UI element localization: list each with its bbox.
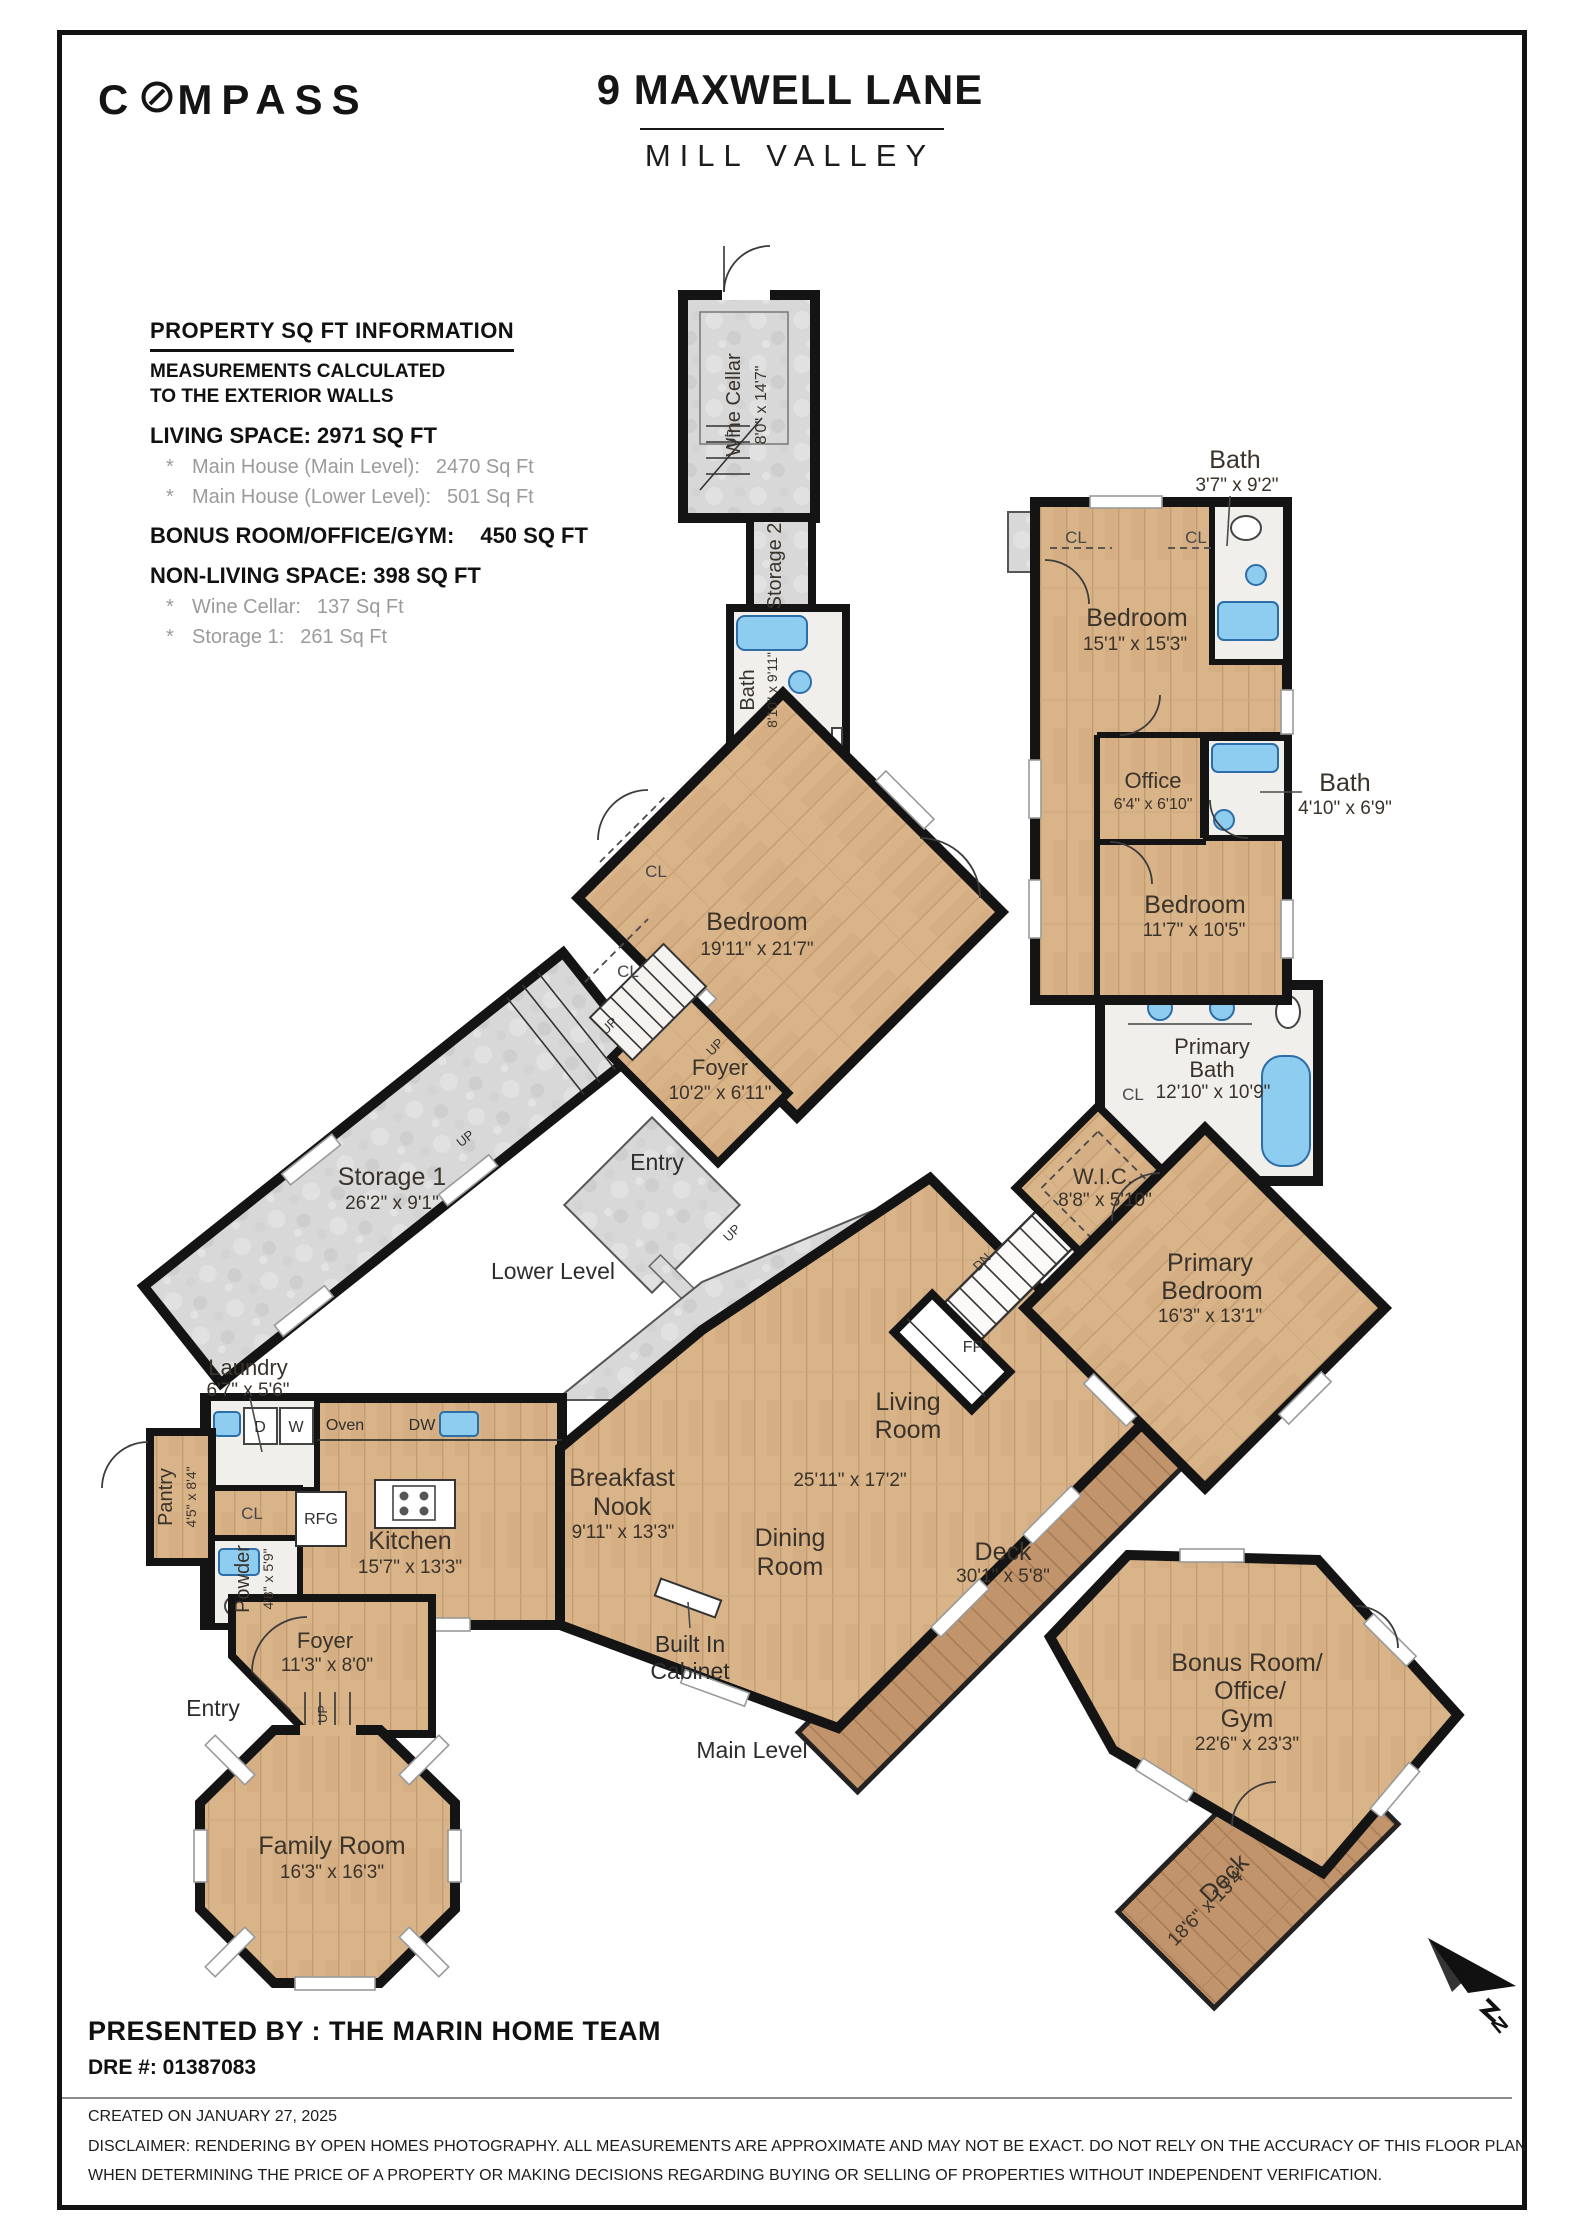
footer-divider <box>62 2097 1512 2099</box>
foyer-main-label: Foyer <box>297 1628 353 1653</box>
pantry-dims: 4'5" x 8'4" <box>183 1466 199 1527</box>
bath-lower-dims: 8'10" x 9'11" <box>764 652 780 728</box>
deck-main-dims: 30'1" x 5'8" <box>956 1566 1050 1587</box>
storage1-dims: 26'2" x 9'1" <box>345 1193 439 1214</box>
powder-label: Powder <box>232 1545 254 1613</box>
dryer-label: D <box>254 1419 266 1436</box>
bedroom-15-dims: 15'1" x 15'3" <box>1083 634 1187 655</box>
up-label: UP <box>724 429 739 447</box>
main-level-label: Main Level <box>696 1737 807 1763</box>
closet-label: CL <box>1122 1085 1144 1104</box>
living-room-dims: 25'11" x 17'2" <box>793 1470 906 1491</box>
storage1-label: Storage 1 <box>338 1163 446 1191</box>
primary-bedroom-label: Primary <box>1167 1249 1254 1277</box>
sink-icon <box>1214 810 1234 830</box>
powder-dims: 4'8" x 5'9" <box>260 1548 276 1609</box>
family-room-label: Family Room <box>258 1832 405 1860</box>
dre-number: DRE #: 01387083 <box>88 2056 256 2080</box>
storage2-label: Storage 2 <box>764 523 786 610</box>
created-date: CREATED ON JANUARY 27, 2025 <box>88 2108 337 2126</box>
tub-icon <box>737 616 807 650</box>
kitchen-sink-icon <box>440 1412 478 1436</box>
disclaimer-line2: WHEN DETERMINING THE PRICE OF A PROPERTY… <box>88 2167 1508 2185</box>
sink-icon <box>1246 565 1266 585</box>
tub-icon <box>1262 1056 1310 1166</box>
closet-label: CL <box>617 962 639 981</box>
breakfast-nook-label2: Nook <box>593 1493 652 1521</box>
primary-bath-label2: Bath <box>1189 1057 1234 1082</box>
laundry-dims: 6'7" x 5'6" <box>206 1380 289 1401</box>
foyer-main-dims: 11'3" x 8'0" <box>281 1655 373 1676</box>
dishwasher-label: DW <box>409 1417 437 1434</box>
up-label: UP <box>720 1221 743 1244</box>
bonus-room-dims: 22'6" x 23'3" <box>1195 1734 1299 1755</box>
tub-icon <box>1212 744 1278 772</box>
laundry-sink-icon <box>214 1412 240 1436</box>
entry-main-label: Entry <box>186 1695 240 1721</box>
wine-cellar-dims: 8'0" x 14'7" <box>753 366 770 445</box>
bonus-room-label: Bonus Room/ <box>1171 1649 1323 1677</box>
dining-room-label2: Room <box>757 1553 824 1581</box>
bonus-room-label3: Gym <box>1221 1705 1274 1733</box>
built-in-cabinet-label: Built In <box>655 1631 725 1657</box>
bedroom-11-dims: 11'7" x 10'5" <box>1143 920 1246 941</box>
kitchen-label: Kitchen <box>368 1527 451 1555</box>
lower-level-label: Lower Level <box>491 1258 615 1284</box>
office-label: Office <box>1124 768 1181 793</box>
pantry-label: Pantry <box>155 1468 177 1526</box>
dining-room-label: Dining <box>755 1524 826 1552</box>
bath-37-label: Bath <box>1209 446 1260 474</box>
office-dims: 6'4" x 6'10" <box>1114 796 1193 813</box>
bath-410-label: Bath <box>1319 769 1370 797</box>
closet-label: CL <box>241 1504 263 1523</box>
refrigerator-label: RFG <box>304 1511 338 1528</box>
north-arrow-icon: N <box>1428 1938 1516 2038</box>
breakfast-nook-label: Breakfast <box>569 1464 675 1492</box>
floorplan-drawing: N Wine Cellar 8'0" x 14'7" UP Storage 2 … <box>0 0 1584 2240</box>
wine-cellar-room <box>683 246 815 518</box>
primary-bedroom-label2: Bedroom <box>1161 1277 1262 1305</box>
presented-by: PRESENTED BY : THE MARIN HOME TEAM <box>88 2016 661 2047</box>
closet-label: CL <box>645 862 667 881</box>
kitchen-island <box>375 1480 455 1528</box>
disclaimer-line1: DISCLAIMER: RENDERING BY OPEN HOMES PHOT… <box>88 2138 1508 2156</box>
primary-bath-label: Primary <box>1174 1034 1250 1059</box>
living-room-label: Living <box>875 1388 940 1416</box>
tub-icon <box>1218 602 1278 640</box>
up-label: UP <box>315 1705 330 1723</box>
bath-410-dims: 4'10" x 6'9" <box>1298 798 1392 819</box>
kitchen-dims: 15'7" x 13'3" <box>358 1557 462 1578</box>
bedroom-lower-dims: 19'11" x 21'7" <box>700 939 813 960</box>
deck-main-label: Deck <box>975 1538 1032 1566</box>
closet-label: CL <box>1185 528 1207 547</box>
sink-icon <box>789 671 811 693</box>
wic-label: W.I.C. <box>1073 1164 1133 1189</box>
bath-37-dims: 3'7" x 9'2" <box>1195 475 1278 496</box>
primary-bedroom-dims: 16'3" x 13'1" <box>1158 1306 1262 1327</box>
bedroom-15-label: Bedroom <box>1086 604 1187 632</box>
bath-lower-label: Bath <box>737 669 759 710</box>
entry-lower-label: Entry <box>630 1149 684 1175</box>
closet-label: CL <box>1065 528 1087 547</box>
laundry-label: Laundry <box>208 1355 288 1380</box>
foyer-lower-label: Foyer <box>692 1055 748 1080</box>
floorplan-page: CMPASS 9 MAXWELL LANE MILL VALLEY PROPER… <box>0 0 1584 2240</box>
bonus-room-label2: Office/ <box>1214 1677 1286 1705</box>
living-room-label2: Room <box>875 1416 942 1444</box>
oven-label: Oven <box>326 1417 364 1434</box>
toilet-icon <box>1231 516 1261 540</box>
breakfast-nook-dims: 9'11" x 13'3" <box>572 1522 675 1543</box>
wic-dims: 8'8" x 5'10" <box>1058 1190 1152 1211</box>
built-in-cabinet-label2: Cabinet <box>650 1658 730 1684</box>
fireplace-label: FP <box>963 1339 983 1356</box>
bedroom-lower-label: Bedroom <box>706 908 807 936</box>
family-room-dims: 16'3" x 16'3" <box>280 1862 384 1883</box>
bedroom-11-label: Bedroom <box>1144 891 1245 919</box>
washer-label: W <box>288 1419 304 1436</box>
primary-bath-dims: 12'10" x 10'9" <box>1156 1082 1271 1103</box>
foyer-lower-dims: 10'2" x 6'11" <box>669 1083 772 1104</box>
